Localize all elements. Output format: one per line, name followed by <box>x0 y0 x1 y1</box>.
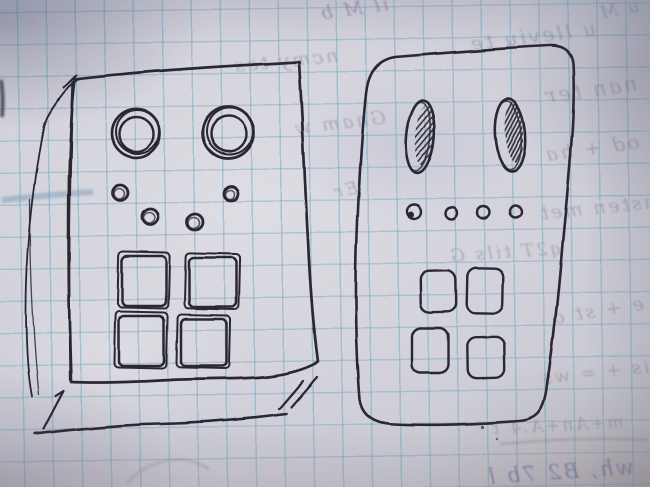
square-button-retrace <box>184 253 239 309</box>
knob-ring-inner <box>120 117 154 151</box>
hatch-slash-left <box>44 391 64 429</box>
rounded-button <box>412 328 448 373</box>
square-button <box>189 258 236 307</box>
left-panel-outline <box>69 62 318 382</box>
rounded-button <box>420 271 457 313</box>
left-panel-buttons <box>114 251 239 368</box>
left-panel-depth-line <box>44 84 72 126</box>
panel-dot-ink-blob <box>408 212 414 218</box>
panel-dot-retrace <box>226 191 235 200</box>
table-shadow-line <box>35 414 286 434</box>
panel-dot-retrace <box>144 213 155 224</box>
corner-scribble <box>64 75 79 88</box>
pen-sketch-svg <box>0 0 650 487</box>
right-panel-outline <box>356 46 574 425</box>
underline-arc-bleed <box>500 439 648 444</box>
left-panel-dots <box>112 185 238 230</box>
right-panel-vent-ovals <box>403 98 528 174</box>
panel-dot <box>446 207 458 219</box>
corner-ink-dot <box>58 99 61 102</box>
panel-dot-retrace <box>189 218 200 229</box>
left-panel-depth-line-3 <box>30 200 39 394</box>
square-button <box>122 256 166 306</box>
square-button <box>119 316 164 366</box>
right-panel-buttons <box>412 268 504 379</box>
left-panel-knobs <box>112 107 254 159</box>
blue-bleed-dash <box>2 192 93 200</box>
rounded-button <box>467 337 505 379</box>
square-button-retrace <box>176 314 230 368</box>
square-button-retrace <box>114 311 167 368</box>
pencil-ghost-line <box>127 460 209 483</box>
left-speaker-sketch <box>26 62 318 434</box>
square-button-retrace <box>117 251 169 308</box>
page-edge-mark <box>1 80 3 117</box>
right-remote-sketch <box>356 46 574 425</box>
panel-dot <box>478 207 490 219</box>
hatch-slash-right <box>279 377 317 409</box>
photo-of-sketch: il M bu Mu lleviu tencmy tesnan terGnam … <box>0 0 650 487</box>
ink-specks <box>481 425 498 440</box>
panel-dot <box>510 206 522 218</box>
rounded-button <box>467 268 504 314</box>
knob-ring-inner <box>211 116 247 152</box>
square-button <box>181 319 227 366</box>
panel-dot-retrace <box>114 189 125 200</box>
right-panel-dots <box>407 205 522 219</box>
